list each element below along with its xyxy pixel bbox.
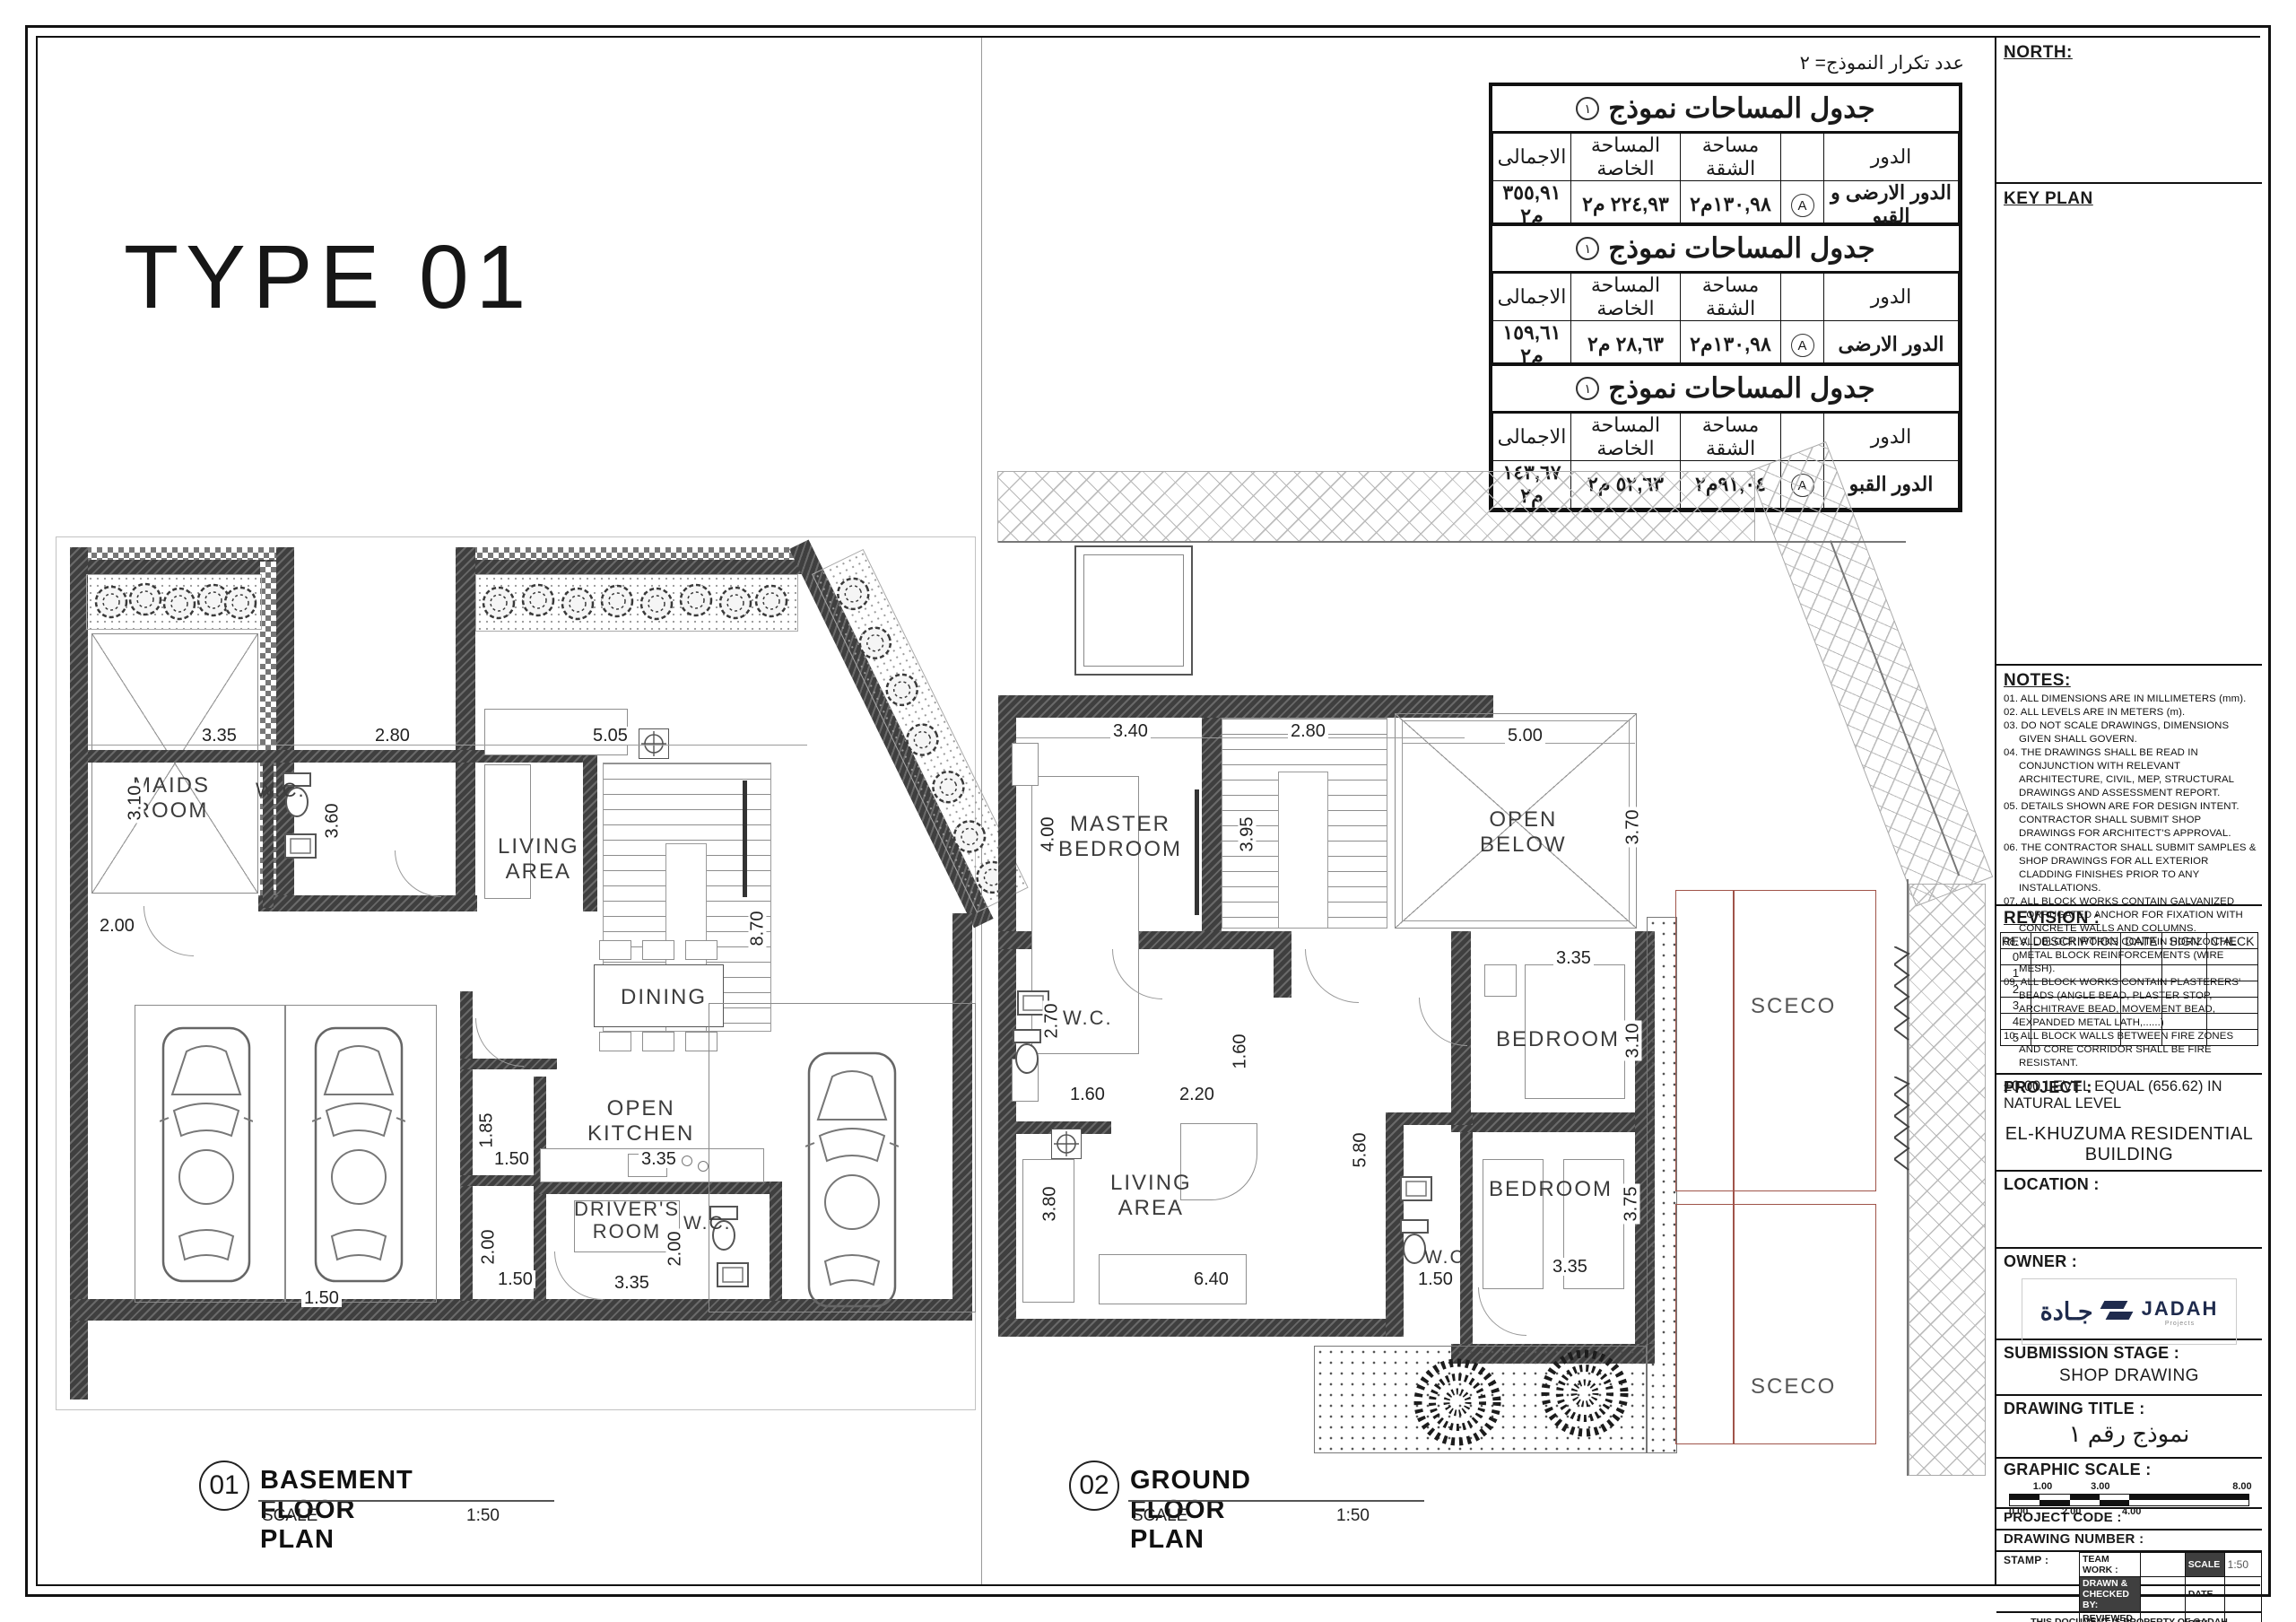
dim: 3.35 bbox=[639, 1150, 679, 1168]
note: 06. THE CONTRACTOR SHALL SUBMIT SAMPLES … bbox=[2004, 842, 2257, 895]
dim: 1.60 bbox=[1067, 1086, 1108, 1103]
roof-hatch bbox=[997, 471, 1755, 543]
jadah-logo-sub: Projects bbox=[2142, 1321, 2219, 1327]
owner-label: OWNER : bbox=[1996, 1249, 2262, 1271]
room-label-wc: W.C. bbox=[1063, 1007, 1113, 1029]
note: 02. ALL LEVELS ARE IN METERS (m). bbox=[2004, 706, 2257, 719]
private-area: ٢٢٤,٩٣ م٢ bbox=[1571, 181, 1681, 229]
car-lift bbox=[91, 633, 258, 894]
paving-hatch bbox=[1909, 884, 1986, 1476]
dim: 3.35 bbox=[612, 1274, 652, 1292]
dim: 1.50 bbox=[495, 1270, 535, 1288]
dim: 2.00 bbox=[479, 1227, 497, 1268]
submission-label: SUBMISSION STAGE : bbox=[1996, 1340, 2262, 1363]
submission-section: SUBMISSION STAGE : SHOP DRAWING bbox=[1996, 1340, 2262, 1396]
model-repeat-note: عدد تكرار النموذج= ٢ bbox=[1677, 52, 1964, 74]
dim: 3.75 bbox=[1622, 1184, 1639, 1225]
apartment-area: ١٣٠,٩٨م٢ bbox=[1681, 321, 1781, 369]
dim: 2.20 bbox=[1177, 1086, 1217, 1103]
plan-number-badge: 01 bbox=[199, 1461, 249, 1511]
car-icon bbox=[160, 1028, 253, 1281]
jadah-logo-latin: JADAH bbox=[2142, 1297, 2219, 1320]
room-label-bedroom2: BEDROOM bbox=[1489, 1177, 1613, 1202]
dim: 3.10 bbox=[126, 783, 143, 824]
revision-row: 3 bbox=[2001, 998, 2258, 1014]
jadah-logo-icon bbox=[2102, 1298, 2133, 1325]
sceco-zone-1 bbox=[1675, 890, 1876, 1191]
model-number-badge: ١ bbox=[1576, 97, 1599, 120]
area-table-ground: جدول المساحات نموذج ١ الدور مساحة الشقة … bbox=[1489, 222, 1962, 372]
project-section: PROJECT : EL-KHUZUMA RESIDENTIAL BUILDIN… bbox=[1996, 1075, 2262, 1172]
drawing-sheet: TYPE 01 عدد تكرار النموذج= ٢ جدول المساح… bbox=[0, 0, 2296, 1622]
shrub-icon bbox=[96, 584, 256, 619]
car-icon bbox=[805, 1053, 899, 1306]
sceco-zone-2 bbox=[1675, 1204, 1876, 1444]
room-label-wc: W.C. bbox=[256, 779, 306, 801]
key-plan-section: KEY PLAN bbox=[1996, 184, 2262, 666]
drawing-number-label: DRAWING NUMBER : bbox=[1996, 1530, 2262, 1547]
dim: 5.00 bbox=[1505, 727, 1545, 745]
room-label-master: MASTER BEDROOM bbox=[1058, 812, 1182, 861]
location-section: LOCATION : bbox=[1996, 1172, 2262, 1249]
submission-value: SHOP DRAWING bbox=[1996, 1366, 2262, 1386]
insulation-zigzag-icon bbox=[1894, 946, 1909, 1040]
dim: 2.80 bbox=[1288, 722, 1328, 740]
dim: 3.10 bbox=[1623, 1021, 1641, 1061]
dim: 2.70 bbox=[1042, 1001, 1060, 1042]
owner-section: OWNER : جـادة JADAH Projects bbox=[1996, 1249, 2262, 1340]
revision-label: REVISION : bbox=[1996, 906, 2262, 929]
dim: 3.40 bbox=[1110, 722, 1151, 740]
tree-icon bbox=[1418, 1363, 1497, 1442]
area-table-combined: جدول المساحات نموذج ١ الدور مساحة الشقة … bbox=[1489, 83, 1962, 232]
shrub-icon bbox=[483, 585, 787, 619]
notes-label: NOTES: bbox=[1996, 666, 2262, 691]
plan-scale-value: 1:50 bbox=[466, 1506, 500, 1526]
total-area: ١٥٩,٦١ م٢ bbox=[1493, 321, 1571, 369]
location-label: LOCATION : bbox=[1996, 1172, 2262, 1194]
owner-logo: جـادة JADAH Projects bbox=[2022, 1278, 2237, 1345]
total-area: ٣٥٥,٩١ م٢ bbox=[1493, 181, 1571, 229]
project-code-section: PROJECT CODE : bbox=[1996, 1509, 2262, 1530]
dim: 3.35 bbox=[199, 727, 239, 745]
stamp-section: STAMP : TEAM WORK : SCALE 1:50 DRAWN & C… bbox=[1996, 1552, 2262, 1622]
floor-name: الدور الارضى bbox=[1824, 321, 1959, 369]
drawing-title-section: DRAWING TITLE : نموذج رقم ١ bbox=[1996, 1396, 2262, 1459]
dim: 1.50 bbox=[1415, 1270, 1456, 1288]
jadah-logo-arabic: جـادة bbox=[2040, 1298, 2093, 1326]
note: 03. DO NOT SCALE DRAWINGS, DIMENSIONS GI… bbox=[2004, 719, 2257, 746]
north-label: NORTH: bbox=[1996, 38, 2262, 63]
dim: 5.05 bbox=[590, 727, 631, 745]
sink-icon bbox=[285, 834, 316, 858]
note: 05. DETAILS SHOWN ARE FOR DESIGN INTENT.… bbox=[2004, 800, 2257, 841]
ceiling-fan-icon bbox=[1051, 1129, 1082, 1159]
room-label-wc2: W.C bbox=[1424, 1247, 1465, 1269]
revision-row: 2 bbox=[2001, 981, 2258, 998]
stamp-scale-value: 1:50 bbox=[2224, 1553, 2261, 1577]
graphic-scale-section: GRAPHIC SCALE : 1.00 3.00 8.00 0.00 2.00 bbox=[1996, 1459, 2262, 1509]
dim: 3.95 bbox=[1238, 815, 1256, 855]
col-private: المساحة الخاصة bbox=[1571, 134, 1681, 181]
dim: 1.85 bbox=[477, 1111, 495, 1151]
title-block: NORTH: KEY PLAN NOTES: 01. ALL DIMENSION… bbox=[1995, 38, 2262, 1584]
north-section: NORTH: bbox=[1996, 38, 2262, 184]
drawing-number-section: DRAWING NUMBER : bbox=[1996, 1530, 2262, 1552]
unit-symbol: A bbox=[1791, 194, 1814, 217]
notes-section: NOTES: 01. ALL DIMENSIONS ARE IN MILLIME… bbox=[1996, 666, 2262, 906]
floor-name: الدور الارضى و القبو bbox=[1824, 181, 1959, 229]
dim: 3.80 bbox=[1040, 1184, 1058, 1225]
private-area: ٢٨,٦٣ م٢ bbox=[1571, 321, 1681, 369]
drawing-title-value: نموذج رقم ١ bbox=[1996, 1420, 2262, 1448]
gravel-strip bbox=[1647, 917, 1677, 1453]
revision-row: 4 bbox=[2001, 1014, 2258, 1030]
revision-section: REVISION : REV. DESCRIPTION DATE SIGN CH… bbox=[1996, 906, 2262, 1075]
area-table-title: جدول المساحات نموذج bbox=[1608, 92, 1874, 125]
room-label-wc2: W.C. bbox=[683, 1213, 732, 1234]
room-label-bedroom1: BEDROOM bbox=[1496, 1027, 1620, 1052]
toilet-icon bbox=[1013, 1030, 1040, 1073]
dim: 1.60 bbox=[1231, 1032, 1248, 1072]
project-label: PROJECT : bbox=[1996, 1075, 2262, 1097]
dim: 3.35 bbox=[1553, 949, 1594, 967]
tree-icon bbox=[1545, 1354, 1624, 1433]
room-label-openbelow: OPEN BELOW bbox=[1480, 807, 1567, 857]
dim: 1.50 bbox=[491, 1150, 532, 1168]
dim: 4.00 bbox=[1039, 815, 1057, 855]
insulation-zigzag-icon bbox=[1894, 1077, 1909, 1170]
room-label-driver: DRIVER'S ROOM bbox=[574, 1198, 680, 1243]
plan-number-badge: 02 bbox=[1069, 1461, 1119, 1511]
col-apartment: مساحة الشقة bbox=[1681, 134, 1781, 181]
room-label-dining: DINING bbox=[621, 985, 707, 1010]
room-label-sceco2: SCECO bbox=[1751, 1374, 1836, 1400]
revision-row: 0 bbox=[2001, 949, 2258, 965]
plan-scale-label: SCALE bbox=[262, 1506, 317, 1526]
key-plan-label: KEY PLAN bbox=[1996, 184, 2262, 209]
dim: 2.80 bbox=[372, 727, 413, 745]
revision-table: REV. DESCRIPTION DATE SIGN CHECK 0 1 2 3… bbox=[2000, 932, 2258, 1046]
room-label-kitchen: OPEN KITCHEN bbox=[587, 1096, 694, 1146]
ceiling-fan-icon bbox=[639, 728, 669, 759]
sink-icon bbox=[717, 1263, 748, 1286]
project-code-label: PROJECT CODE : bbox=[1996, 1509, 2262, 1525]
dim: 3.60 bbox=[323, 801, 341, 842]
graphic-scale-label: GRAPHIC SCALE : bbox=[1996, 1459, 2262, 1479]
plan-scale-value: 1:50 bbox=[1336, 1506, 1370, 1526]
dim: 2.00 bbox=[665, 1229, 683, 1269]
plan-scale-label: SCALE bbox=[1132, 1506, 1187, 1526]
dim: 8.70 bbox=[748, 909, 766, 949]
note: 04. THE DRAWINGS SHALL BE READ IN CONJUN… bbox=[2004, 746, 2257, 800]
dim: 5.80 bbox=[1351, 1130, 1369, 1171]
note: 01. ALL DIMENSIONS ARE IN MILLIMETERS (m… bbox=[2004, 693, 2257, 706]
project-name: EL-KHUZUMA RESIDENTIAL BUILDING bbox=[1996, 1124, 2262, 1165]
room-label-living: LIVING AREA bbox=[1110, 1171, 1192, 1220]
copyright-note: THIS DOCUMENT IS PROPERTY OF GADAH NO US… bbox=[1996, 1611, 2262, 1622]
sink-icon bbox=[1401, 1177, 1431, 1200]
car-icon bbox=[312, 1028, 405, 1281]
room-label-sceco1: SCECO bbox=[1751, 994, 1836, 1019]
dim: 6.40 bbox=[1191, 1270, 1231, 1288]
dim: 3.70 bbox=[1623, 807, 1641, 848]
revision-row: 5 bbox=[2001, 1030, 2258, 1046]
col-floor: الدور bbox=[1824, 134, 1959, 181]
tv-icon bbox=[743, 780, 747, 897]
dim: 2.00 bbox=[97, 917, 137, 935]
dim: 3.35 bbox=[1550, 1258, 1590, 1276]
apartment-area: ١٣٠,٩٨م٢ bbox=[1681, 181, 1781, 229]
revision-row: 1 bbox=[2001, 965, 2258, 981]
type-title: TYPE 01 bbox=[124, 226, 533, 329]
room-label-living: LIVING AREA bbox=[498, 834, 579, 884]
tv-icon bbox=[1195, 789, 1199, 915]
col-total: الاجمالى bbox=[1493, 134, 1571, 181]
dim: 1.50 bbox=[301, 1289, 342, 1307]
drawing-title-label: DRAWING TITLE : bbox=[1996, 1396, 2262, 1418]
